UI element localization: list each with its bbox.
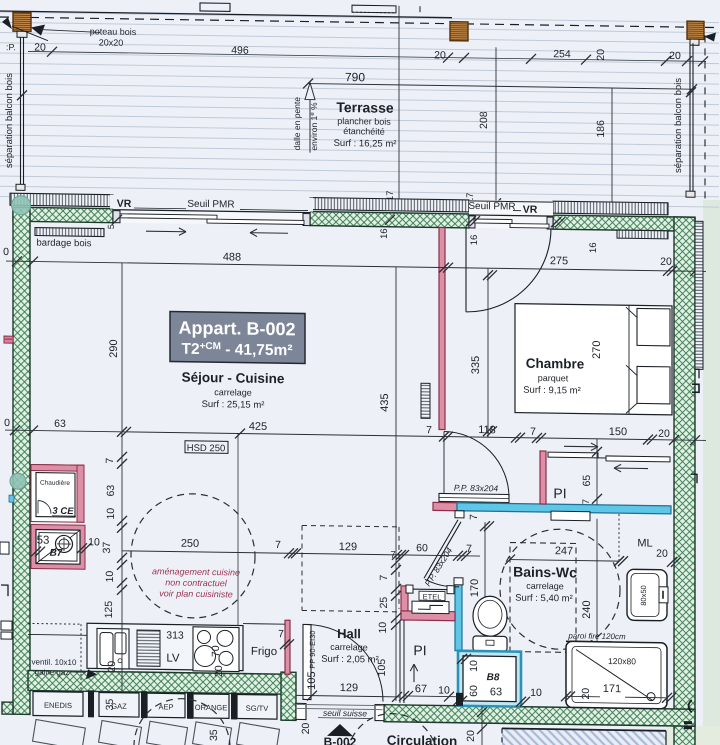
svg-text:335: 335 bbox=[470, 356, 482, 375]
svg-text:7: 7 bbox=[390, 550, 395, 561]
svg-text:171: 171 bbox=[603, 683, 621, 695]
svg-text:63: 63 bbox=[105, 485, 117, 497]
svg-text:488: 488 bbox=[223, 251, 241, 263]
svg-text:dalle en pente: dalle en pente bbox=[292, 97, 302, 151]
svg-text:16: 16 bbox=[469, 235, 480, 246]
svg-text:poteau bois: poteau bois bbox=[90, 26, 137, 37]
svg-text:séparation balcon bois: séparation balcon bois bbox=[673, 78, 684, 173]
svg-text:20: 20 bbox=[34, 42, 46, 54]
svg-text:Frigo: Frigo bbox=[251, 646, 277, 658]
svg-text:290: 290 bbox=[108, 339, 120, 358]
svg-text:208: 208 bbox=[478, 111, 490, 129]
svg-text:20x20: 20x20 bbox=[99, 37, 124, 47]
svg-text:séparation balcon bois: séparation balcon bois bbox=[4, 73, 15, 168]
svg-text:parquet: parquet bbox=[538, 373, 569, 383]
svg-text:67: 67 bbox=[415, 683, 427, 695]
svg-text:63: 63 bbox=[54, 418, 66, 430]
svg-text:63: 63 bbox=[490, 686, 502, 698]
svg-text:20: 20 bbox=[213, 665, 225, 677]
svg-text:7: 7 bbox=[275, 539, 281, 551]
svg-text:80x50: 80x50 bbox=[639, 585, 648, 606]
svg-text:Surf : 25,15 m²: Surf : 25,15 m² bbox=[202, 399, 265, 411]
svg-text:20: 20 bbox=[465, 730, 477, 742]
svg-text:37: 37 bbox=[101, 541, 113, 553]
svg-text:247: 247 bbox=[555, 545, 573, 557]
svg-text:254: 254 bbox=[553, 48, 571, 60]
svg-text:Terrasse: Terrasse bbox=[336, 99, 394, 116]
svg-text:7: 7 bbox=[104, 457, 116, 463]
svg-text:HSD 250: HSD 250 bbox=[187, 443, 226, 455]
svg-text:35: 35 bbox=[208, 729, 220, 741]
svg-text:voir plan cuisiniste: voir plan cuisiniste bbox=[159, 588, 233, 599]
svg-text:20: 20 bbox=[580, 688, 592, 700]
svg-text:275: 275 bbox=[550, 255, 568, 267]
svg-text:60: 60 bbox=[416, 542, 428, 554]
svg-text:B-002: B-002 bbox=[324, 735, 357, 745]
svg-text:0: 0 bbox=[3, 246, 9, 258]
svg-text:0: 0 bbox=[4, 417, 10, 429]
svg-text:PI: PI bbox=[413, 642, 426, 658]
svg-text:170: 170 bbox=[469, 579, 481, 598]
svg-text:LV: LV bbox=[166, 652, 180, 664]
svg-text:270: 270 bbox=[591, 341, 603, 360]
svg-text:Surf : 16,25 m²: Surf : 16,25 m² bbox=[334, 138, 397, 150]
svg-text:129: 129 bbox=[339, 541, 357, 553]
svg-text:20: 20 bbox=[595, 49, 607, 61]
svg-text:Séjour - Cuisine: Séjour - Cuisine bbox=[182, 370, 285, 387]
svg-text:16: 16 bbox=[379, 228, 390, 239]
svg-text:53: 53 bbox=[37, 535, 50, 547]
svg-text:PP 90-EI30: PP 90-EI30 bbox=[308, 630, 317, 668]
svg-text:10: 10 bbox=[104, 571, 116, 583]
svg-text:ETEL: ETEL bbox=[423, 592, 442, 601]
svg-text:ENEDIS: ENEDIS bbox=[44, 701, 72, 710]
svg-text:ML: ML bbox=[637, 537, 652, 549]
svg-text:10: 10 bbox=[88, 536, 100, 548]
svg-text:25: 25 bbox=[378, 597, 390, 609]
svg-text:environ 1e %: environ 1e % bbox=[309, 102, 319, 151]
svg-text:T2+CM - 41,75m²: T2+CM - 41,75m² bbox=[181, 341, 292, 360]
svg-text:étanchéité: étanchéité bbox=[343, 126, 385, 137]
svg-text:20: 20 bbox=[300, 722, 312, 734]
svg-text:Surf : 2,05 m²: Surf : 2,05 m² bbox=[321, 654, 379, 666]
svg-text:B8: B8 bbox=[487, 672, 500, 683]
svg-text:790: 790 bbox=[345, 70, 365, 84]
svg-text:10: 10 bbox=[530, 687, 542, 699]
svg-text:VR: VR bbox=[117, 198, 132, 210]
svg-text:7: 7 bbox=[278, 628, 284, 640]
svg-text:105: 105 bbox=[306, 671, 318, 690]
svg-text:120x80: 120x80 bbox=[608, 656, 636, 666]
svg-text:496: 496 bbox=[231, 44, 249, 56]
svg-text:35: 35 bbox=[104, 699, 116, 711]
svg-text:Seuil PMR: Seuil PMR bbox=[187, 199, 234, 211]
svg-text:10: 10 bbox=[468, 660, 480, 672]
svg-text:carrelage: carrelage bbox=[526, 581, 564, 592]
svg-text:Chaudière: Chaudière bbox=[40, 480, 70, 487]
svg-text:70: 70 bbox=[210, 645, 222, 657]
svg-text:7: 7 bbox=[468, 514, 480, 520]
svg-text:P.P. 83x204: P.P. 83x204 bbox=[454, 483, 498, 494]
svg-text:3 CE: 3 CE bbox=[52, 506, 74, 517]
svg-text:carrelage: carrelage bbox=[214, 387, 252, 398]
svg-text:20: 20 bbox=[434, 49, 446, 61]
svg-text:435: 435 bbox=[379, 393, 391, 412]
svg-text:Bains-Wc: Bains-Wc bbox=[513, 564, 577, 581]
svg-text:Chambre: Chambre bbox=[526, 356, 585, 372]
svg-text:Surf : 5,40 m²: Surf : 5,40 m² bbox=[515, 593, 573, 605]
svg-text:SG/TV: SG/TV bbox=[246, 704, 269, 713]
svg-text:bardage bois: bardage bois bbox=[37, 238, 92, 250]
svg-text:VR: VR bbox=[523, 204, 538, 216]
svg-text:Hall: Hall bbox=[337, 626, 361, 641]
svg-text:250: 250 bbox=[181, 538, 199, 550]
svg-text:carrelage: carrelage bbox=[330, 642, 368, 653]
svg-text:20: 20 bbox=[106, 661, 118, 673]
svg-text:gaine gaz: gaine gaz bbox=[35, 668, 70, 678]
svg-text:425: 425 bbox=[249, 421, 267, 433]
svg-text:Circulation: Circulation bbox=[387, 733, 458, 745]
svg-text:7: 7 bbox=[530, 426, 536, 438]
svg-text:60: 60 bbox=[468, 685, 480, 697]
svg-text:129: 129 bbox=[340, 682, 358, 694]
svg-text:313: 313 bbox=[166, 629, 184, 641]
svg-text:B7: B7 bbox=[50, 548, 63, 559]
svg-text:Appart. B-002: Appart. B-002 bbox=[178, 318, 295, 340]
svg-text:7: 7 bbox=[426, 424, 432, 436]
svg-text:ORANGE: ORANGE bbox=[195, 703, 228, 712]
svg-text:5: 5 bbox=[106, 224, 116, 229]
svg-text:Surf : 9,15 m²: Surf : 9,15 m² bbox=[523, 385, 581, 397]
svg-text:aménagement cuisine: aménagement cuisine bbox=[152, 566, 240, 577]
svg-text:non contractuel: non contractuel bbox=[165, 577, 228, 588]
svg-text:7: 7 bbox=[378, 574, 390, 580]
svg-text:20: 20 bbox=[658, 428, 670, 440]
svg-text:7: 7 bbox=[581, 499, 592, 504]
svg-text:186: 186 bbox=[595, 120, 607, 138]
svg-text::P.: :P. bbox=[6, 42, 16, 52]
svg-text:Seuil PMR: Seuil PMR bbox=[468, 201, 515, 213]
svg-text:125: 125 bbox=[103, 601, 115, 619]
svg-text:16: 16 bbox=[588, 242, 599, 253]
svg-text:65: 65 bbox=[581, 475, 593, 487]
svg-text:20: 20 bbox=[656, 548, 668, 560]
svg-text:10: 10 bbox=[377, 622, 389, 634]
svg-text:10: 10 bbox=[438, 684, 450, 696]
svg-text:10: 10 bbox=[105, 508, 117, 520]
svg-text:20: 20 bbox=[660, 256, 672, 268]
svg-text:7: 7 bbox=[466, 543, 472, 555]
svg-text:105: 105 bbox=[376, 659, 388, 677]
svg-text:PI: PI bbox=[553, 485, 566, 501]
svg-text:seuil suisse: seuil suisse bbox=[323, 708, 367, 719]
svg-text:240: 240 bbox=[581, 600, 593, 619]
svg-text:paroi fire 120cm: paroi fire 120cm bbox=[567, 631, 626, 641]
svg-text:20: 20 bbox=[669, 50, 681, 62]
svg-text:150: 150 bbox=[609, 426, 627, 438]
svg-text:ventil. 10x10: ventil. 10x10 bbox=[32, 657, 77, 667]
